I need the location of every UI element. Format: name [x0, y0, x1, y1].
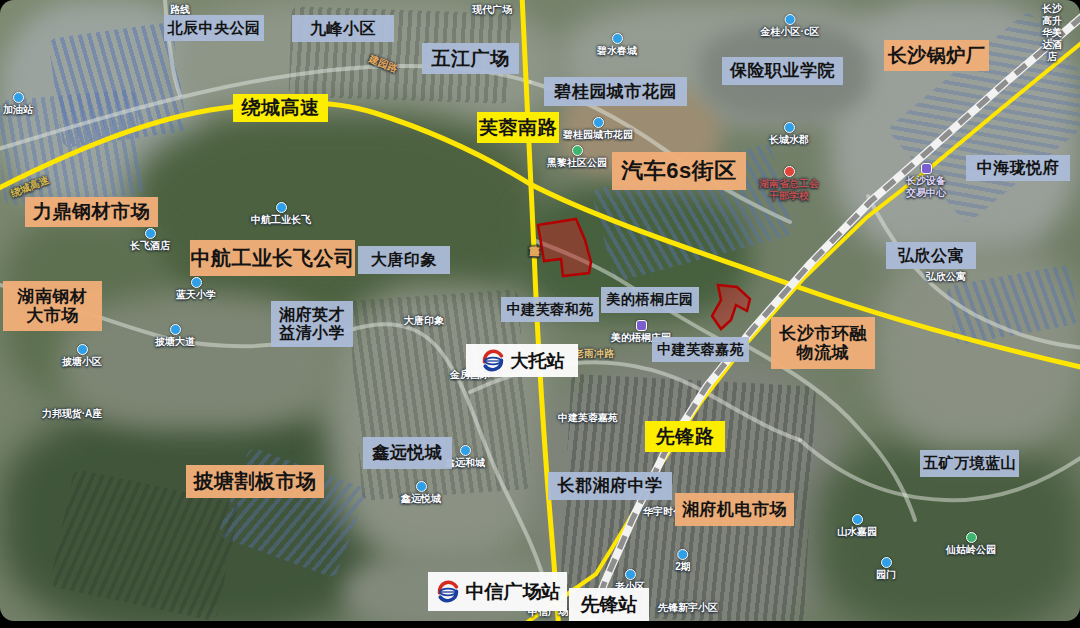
map-annotation-label: 弘欣公寓: [886, 242, 976, 269]
basemap-label-text: 长沙设备 交易中心: [906, 175, 946, 199]
metro-station-badge[interactable]: 先锋站: [569, 588, 649, 621]
basemap-label-text: 长城水郡: [769, 134, 809, 146]
basemap-label-text: 园门: [876, 569, 896, 581]
highlighted-plot[interactable]: [712, 285, 750, 329]
basemap-label: 蓝天小学: [176, 277, 216, 301]
basemap-label: 鑫远悦城: [401, 481, 441, 505]
changsha-metro-logo-icon: [480, 348, 506, 374]
terrain-patch: [700, 25, 870, 120]
map-annotation-label: 保险职业学院: [722, 57, 843, 85]
poi-blue-icon: [612, 33, 623, 44]
major-roads-layer: [0, 0, 1080, 621]
map-annotation-label: 长郡湘府中学: [548, 472, 672, 500]
poi-red-icon: [784, 166, 795, 177]
satellite-terrain: [0, 0, 1080, 621]
basemap-label: 碧桂园城市花园: [563, 117, 633, 141]
basemap-label: 中信广场: [528, 606, 568, 618]
basemap-label-text: 碧桂园城市花园: [563, 129, 633, 141]
poi-blue-icon: [460, 445, 471, 456]
basemap-label-text: 金桂小区·c区: [761, 26, 820, 38]
poi-blue-icon: [784, 122, 795, 133]
building-cluster: [218, 446, 368, 578]
building-cluster: [48, 22, 187, 148]
street: [868, 196, 1080, 348]
basemap-label: 弘欣公寓: [926, 271, 966, 283]
street: [533, 240, 740, 350]
map-annotation-label: 力鼎钢材市场: [25, 197, 158, 227]
basemap-label-text: 披塘小区: [62, 356, 102, 368]
terrain-patch: [130, 110, 540, 320]
poi-blue-icon: [785, 14, 796, 25]
street: [165, 0, 180, 95]
map-annotation-label: 中航工业长飞公司: [190, 240, 355, 276]
terrain-patch: [170, 0, 560, 135]
basemap-labels-layer: 路线现代广场长沙高升 华美达酒店金桂小区·c区碧水春城加油站碧桂园城市花园黑黎社…: [0, 0, 1080, 621]
road-xianfeng: [516, 40, 1080, 621]
basemap-label-text: 力邦现货·A座: [42, 408, 103, 420]
map-annotation-label: 中海珑悦府: [966, 155, 1070, 181]
terrain-patch: [345, 555, 555, 621]
basemap-label: 中建芙蓉嘉苑: [558, 412, 618, 424]
basemap-label-text: 长沙高升 华美达酒店: [1038, 3, 1066, 63]
poi-blue-icon: [593, 117, 604, 128]
road-furong-south: [522, 0, 559, 621]
basemap-label-text: 先锋新宇小区: [658, 602, 718, 614]
basemap-label: 金房国际: [450, 369, 490, 381]
station-name: 大托站: [511, 349, 565, 373]
building-cluster: [348, 289, 532, 500]
poi-blue-icon: [191, 277, 202, 288]
basemap-label: 山水嘉园: [837, 514, 877, 538]
basemap-label-text: 2期: [675, 561, 691, 573]
map-annotation-label: 九峰小区: [292, 15, 394, 42]
building-cluster: [591, 143, 794, 283]
metro-station-badge[interactable]: 大托站: [466, 344, 578, 377]
poi-green-icon: [572, 145, 583, 156]
map-annotation-label: 鑫远悦城: [363, 437, 452, 469]
map-annotation-label: 先锋路: [645, 421, 725, 452]
basemap-label-text: 中信广场: [528, 606, 568, 618]
basemap-label: 华宇时代: [643, 506, 683, 518]
basemap-label-text: 老小区: [615, 581, 645, 593]
basemap-label-text: 金房国际: [450, 369, 490, 381]
annotation-labels-layer: 北辰中央公园九峰小区五江广场碧桂园城市花园保险职业学院长沙锅炉厂中海珑悦府弘欣公…: [0, 0, 1080, 621]
terrain-patch: [390, 160, 520, 235]
basemap-label-text: 老雨冲路: [574, 348, 614, 360]
basemap-label-text: 大唐印象: [404, 315, 444, 327]
basemap-label: 园门: [876, 557, 896, 581]
station-name: 中信广场站: [466, 579, 561, 605]
map-annotation-label: 绕城高速: [233, 94, 328, 122]
map-annotation-label: 长沙市环融 物流城: [771, 317, 875, 369]
poi-blue-icon: [13, 92, 24, 103]
poi-blue-icon: [276, 202, 287, 213]
basemap-label-text: 建园路: [367, 53, 399, 75]
map-annotation-label: 长沙锅炉厂: [884, 40, 989, 71]
stations-layer: 大托站 中信广场站先锋站: [0, 0, 1080, 621]
basemap-label: 先锋新宇小区: [658, 602, 718, 614]
basemap-label: 路线: [170, 4, 190, 16]
map-annotation-label: 披塘割板市场: [186, 465, 324, 498]
poi-blue-icon: [170, 324, 181, 335]
terrain-patch: [830, 0, 1080, 260]
basemap-label: 建园路: [367, 53, 399, 75]
basemap-label-text: 披塘大道: [155, 336, 195, 348]
basemap-label-text: 中航工业长飞: [251, 214, 311, 226]
basemap-label: 金桂小区·c区: [761, 14, 820, 38]
poi-purple-icon: [636, 320, 647, 331]
map-annotation-label: 大唐印象: [358, 246, 450, 274]
map-annotation-label: 湘府英才 益清小学: [271, 301, 353, 347]
terrain-patch: [0, 405, 390, 621]
poi-blue-icon: [77, 344, 88, 355]
map-annotation-label: 汽车6s街区: [612, 152, 746, 190]
screenshot-frame: 路线现代广场长沙高升 华美达酒店金桂小区·c区碧水春城加油站碧桂园城市花园黑黎社…: [0, 0, 1080, 628]
map-annotation-label: 湖南钢材 大市场: [3, 281, 102, 331]
basemap-label: 美的梧桐庄园: [611, 320, 671, 344]
basemap-label: 长沙高升 华美达酒店: [1038, 3, 1066, 63]
map-annotation-label: 中建芙蓉嘉苑: [652, 337, 749, 362]
basemap-label: 鑫远和城: [445, 445, 485, 469]
basemap-label-text: 弘欣公寓: [926, 271, 966, 283]
basemap-label-text: 中建芙蓉嘉苑: [558, 412, 618, 424]
basemap-label-text: 仙姑岭公园: [946, 544, 996, 556]
terrain-patch: [60, 295, 330, 430]
basemap-label: 湖南省总工会 干部学校: [759, 166, 819, 202]
basemap-label-text: 美的梧桐庄园: [611, 332, 671, 344]
map-annotation-label: 五矿万境蓝山: [920, 450, 1019, 477]
basemap-label: 中航工业长飞: [251, 202, 311, 226]
minor-streets-layer: [0, 0, 1080, 621]
map-annotation-label: 碧桂园城市花园: [544, 77, 687, 106]
map-annotation-label: 美的梧桐庄园: [601, 287, 699, 313]
basemap-label: 仙姑岭公园: [946, 532, 996, 556]
building-cluster: [288, 6, 511, 104]
map-annotation-label: 湘府机电市场: [675, 493, 794, 526]
changsha-metro-logo-icon: [435, 579, 461, 605]
basemap-label: 加油站: [3, 92, 33, 116]
street: [470, 362, 800, 440]
basemap-label: 披塘大道: [155, 324, 195, 348]
basemap-label-text: 路线: [170, 4, 190, 16]
street: [745, 345, 915, 520]
map-annotation-label: 北辰中央公园: [164, 15, 264, 41]
basemap-label-text: 黑黎社区公园: [547, 157, 607, 169]
basemap-label-text: 华宇时代: [643, 506, 683, 518]
basemap-label-text: 现代广场: [472, 4, 512, 16]
building-cluster: [946, 265, 1080, 346]
basemap-label-text: 碧水春城: [597, 45, 637, 57]
basemap-label-text: 长飞酒店: [130, 240, 170, 252]
street: [800, 440, 1080, 500]
building-cluster: [0, 89, 144, 206]
map-canvas[interactable]: 路线现代广场长沙高升 华美达酒店金桂小区·c区碧水春城加油站碧桂园城市花园黑黎社…: [0, 0, 1080, 621]
basemap-label: 披塘小区: [62, 344, 102, 368]
basemap-label: 长飞酒店: [130, 228, 170, 252]
basemap-label-text: 湖南省总工会 干部学校: [759, 178, 819, 202]
terrain-patch: [535, 355, 845, 621]
basemap-label: 长城水郡: [769, 122, 809, 146]
poi-blue-icon: [678, 549, 689, 560]
basemap-label-text: 绕城高速: [9, 174, 51, 200]
building-cluster: [559, 374, 816, 621]
terrain-patch: [0, 215, 170, 400]
map-annotation-label: 五江广场: [422, 43, 519, 74]
basemap-label: 绕城高速: [9, 174, 51, 200]
terrain-patch: [560, 85, 720, 180]
terrain-patch: [815, 435, 1080, 621]
basemap-label: 碧水春城: [597, 33, 637, 57]
metro-station-badge[interactable]: 中信广场站: [428, 572, 567, 611]
terrain-patch: [0, 0, 210, 215]
basemap-label: 黑黎社区公园: [547, 145, 607, 169]
basemap-label-text: 加油站: [3, 104, 33, 116]
basemap-label: 现代广场: [472, 4, 512, 16]
road-raocheng-expressway: [0, 102, 1080, 368]
poi-purple-icon: [921, 163, 932, 174]
basemap-label: 老小区: [615, 569, 645, 593]
railway-line: [588, 16, 1080, 621]
highlighted-plot[interactable]: [538, 219, 591, 276]
basemap-label-text: 蓝天小学: [176, 289, 216, 301]
basemap-label: 力邦现货·A座: [42, 408, 103, 420]
poi-blue-icon: [852, 514, 863, 525]
building-cluster: [49, 469, 240, 621]
poi-blue-icon: [416, 481, 427, 492]
station-name: 先锋站: [581, 592, 638, 618]
map-annotation-label: 芙蓉南路: [477, 112, 559, 143]
basemap-label: 2期: [675, 549, 691, 573]
street: [0, 285, 548, 595]
terrain-patch: [330, 285, 550, 565]
map-annotation-label: 中建芙蓉和苑: [501, 297, 599, 322]
street: [0, 66, 530, 150]
poi-blue-icon: [881, 557, 892, 568]
building-cluster: [886, 10, 1080, 225]
poi-blue-icon: [625, 569, 636, 580]
basemap-label: 大唐印象: [404, 315, 444, 327]
poi-green-icon: [966, 532, 977, 543]
basemap-label-text: 鑫远和城: [445, 457, 485, 469]
terrain-patch: [875, 245, 1080, 450]
basemap-label-text: 山水嘉园: [837, 526, 877, 538]
poi-blue-icon: [145, 228, 156, 239]
basemap-label: 长沙设备 交易中心: [906, 163, 946, 199]
terrain-patch: [560, 0, 900, 125]
basemap-label-text: 鑫远悦城: [401, 493, 441, 505]
street: [530, 82, 790, 222]
terrain-patch: [520, 185, 750, 320]
basemap-label: 老雨冲路: [574, 348, 614, 360]
